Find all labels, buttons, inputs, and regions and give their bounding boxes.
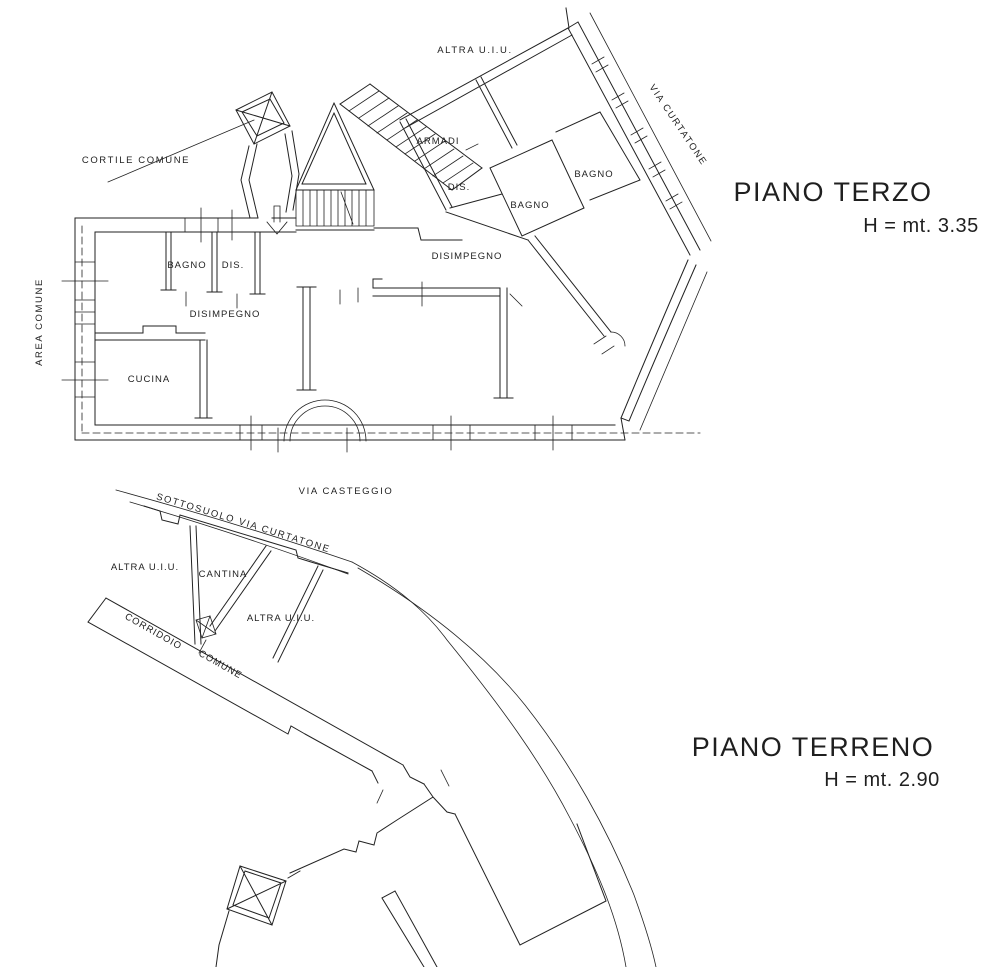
entrance-arrow-icon (267, 206, 287, 234)
label-cortile-comune: CORTILE COMUNE (82, 155, 190, 166)
terreno-wedge-walls-path (455, 814, 606, 945)
plan-height-piano-terzo: H = mt. 3.35 (863, 215, 979, 237)
label-via-curtatone: VIA CURTATONE (647, 83, 710, 168)
terzo-window-marks-path (62, 262, 572, 452)
label-bagno-center: BAGNO (510, 200, 549, 211)
terreno-elevator-path (216, 866, 300, 967)
terzo-outer-wall-path (75, 218, 625, 440)
label-area-comune: AREA COMUNE (34, 278, 45, 366)
label-via-casteggio: VIA CASTEGGIO (299, 486, 394, 497)
elevator-shaft-path (236, 92, 290, 144)
label-dis-left: DIS. (222, 260, 244, 271)
terreno-inner-curve-path (352, 562, 626, 967)
label-armadi: ARMADI (417, 136, 460, 147)
terzo-street-edge-path (590, 13, 711, 241)
terreno-outer-curve-path (358, 568, 656, 967)
label-cantina: CANTINA (199, 569, 248, 580)
floor-plan-drawing: CORTILE COMUNE ALTRA U.I.U. VIA CURTATON… (0, 0, 996, 967)
label-bagno-right: BAGNO (574, 169, 613, 180)
piano-terzo-plan: CORTILE COMUNE ALTRA U.I.U. VIA CURTATON… (34, 8, 979, 497)
terzo-curved-wall-path (621, 260, 696, 421)
label-altra-uiu-left: ALTRA U.I.U. (111, 562, 179, 573)
label-disimpegno-right: DISIMPEGNO (432, 251, 503, 262)
label-disimpegno-left: DISIMPEGNO (190, 309, 261, 320)
label-comune: COMUNE (197, 648, 244, 681)
label-altra-uiu-right: ALTRA U.I.U. (247, 613, 315, 624)
label-cucina: CUCINA (128, 374, 170, 385)
terreno-ramp-path (382, 891, 437, 967)
terzo-door-arc-path (594, 332, 625, 354)
label-sottosuolo-via-curtatone: SOTTOSUOLO VIA CURTATONE (155, 491, 332, 555)
plan-title-piano-terreno: PIANO TERRENO (692, 732, 935, 762)
terzo-bent-walls-path (241, 131, 299, 218)
plan-height-piano-terreno: H = mt. 2.90 (824, 769, 940, 791)
terzo-boundary-dashed-path (82, 226, 700, 433)
floor-plan-sheet: CORTILE COMUNE ALTRA U.I.U. VIA CURTATON… (0, 0, 996, 967)
corridor-door-ticks-path (377, 770, 449, 803)
label-dis-right: DIS. (448, 182, 470, 193)
courtyard-line-path (108, 120, 254, 182)
terzo-parapet-curve-path (640, 272, 707, 430)
skylight-grid-path (296, 190, 374, 226)
corridor-steep-wall-path (290, 784, 455, 873)
label-altra-uiu-terzo: ALTRA U.I.U. (437, 45, 513, 56)
label-bagno-left: BAGNO (167, 260, 206, 271)
terzo-diagonal-wall-path (528, 236, 611, 336)
plan-title-piano-terzo: PIANO TERZO (733, 177, 932, 207)
entrance-steps-arc-path (284, 400, 366, 441)
piano-terreno-plan: SOTTOSUOLO VIA CURTATONE ALTRA U.I.U. CA… (88, 490, 940, 967)
